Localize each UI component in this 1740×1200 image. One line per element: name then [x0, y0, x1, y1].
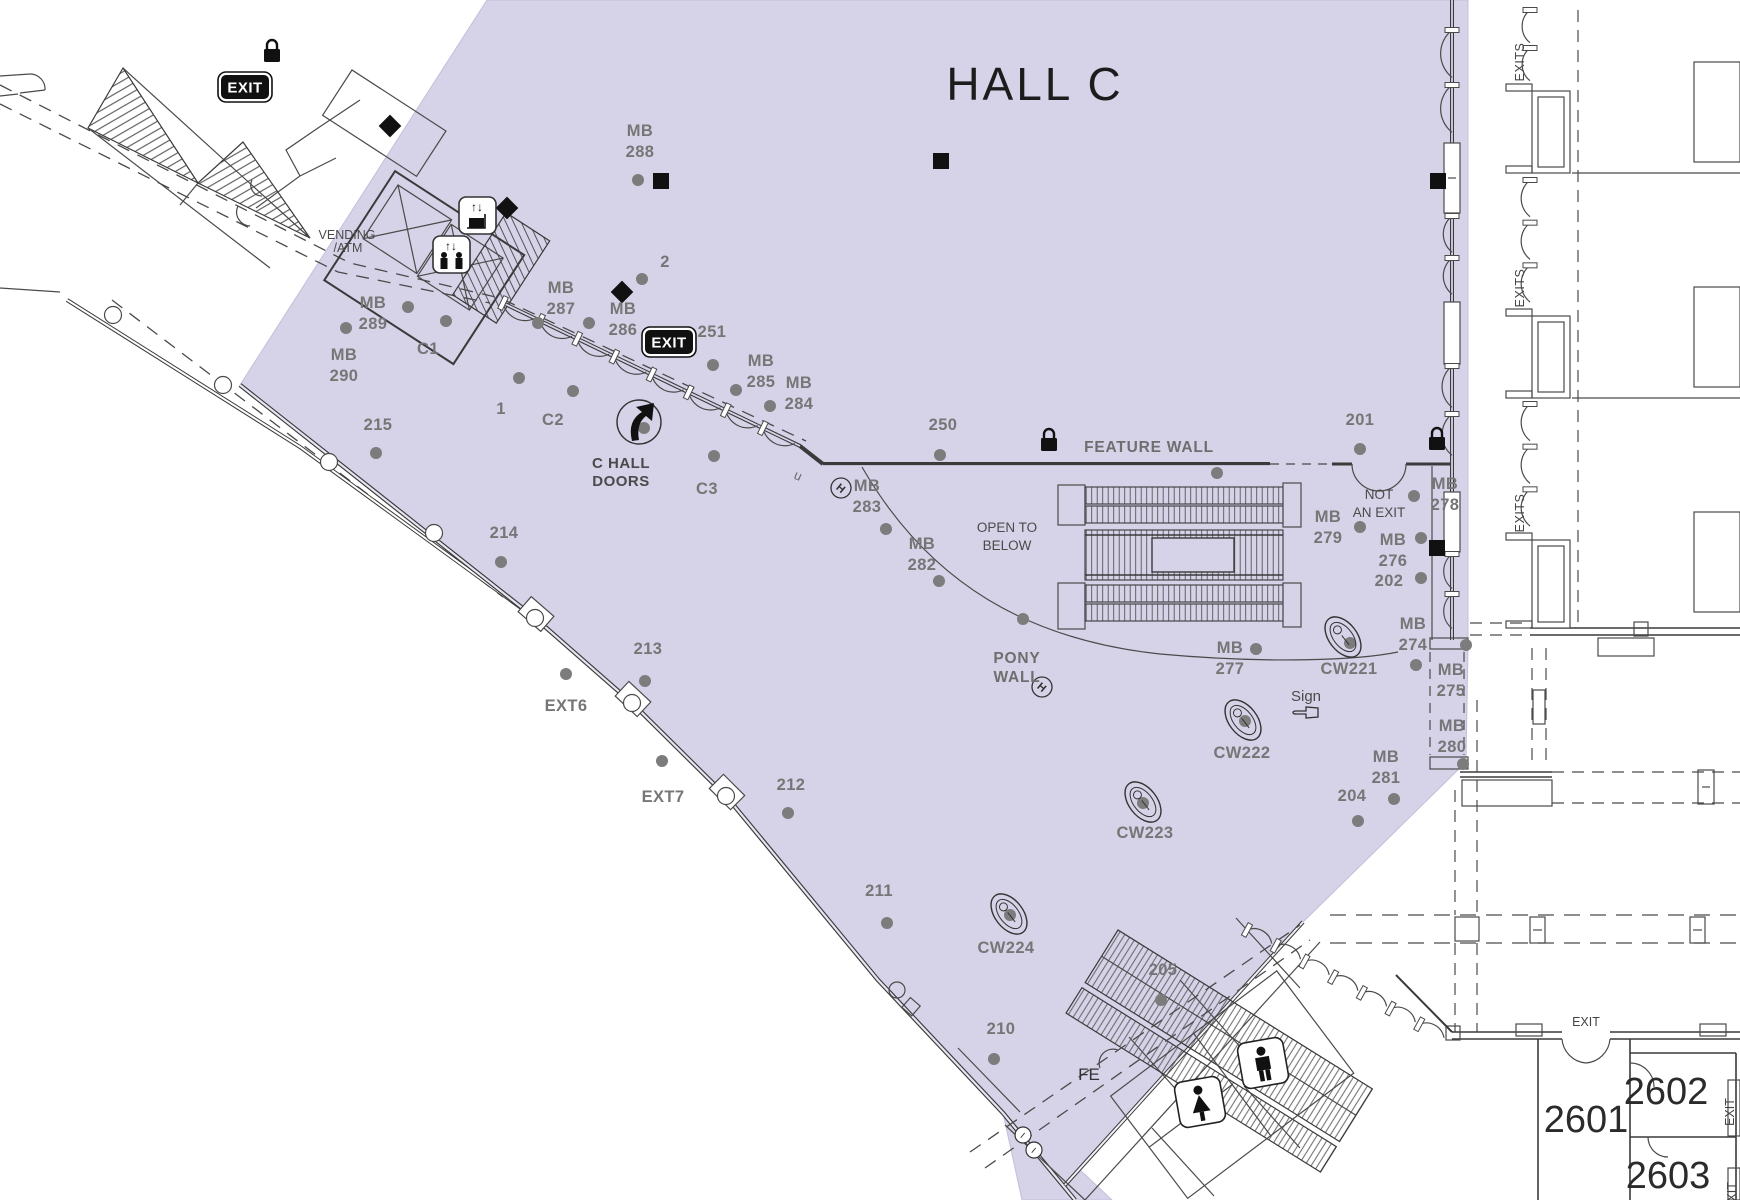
map-marker-text: 213 — [634, 640, 663, 658]
map-marker-label: CW223 — [1116, 824, 1173, 842]
marker-dot — [1388, 793, 1400, 805]
marker-dot — [1250, 643, 1262, 655]
door-jamb — [1385, 1001, 1396, 1016]
map-marker-text: CW221 — [1320, 660, 1377, 678]
east-corridor — [1506, 10, 1740, 656]
c-hall-doors-label: C HALL — [592, 455, 650, 472]
map-marker-text: MB — [627, 122, 653, 140]
pony-wall-label: PONY — [993, 650, 1040, 667]
door-jamb — [1523, 263, 1537, 268]
open-to-below-label: OPEN TO — [977, 520, 1037, 535]
map-marker-text: MB — [1315, 508, 1341, 526]
svg-text:EXIT: EXIT — [651, 335, 686, 352]
door-arc — [1304, 960, 1329, 975]
room-numbers-layer: 260126022603 — [1544, 1071, 1711, 1197]
door-jamb — [1356, 986, 1367, 1001]
map-marker-label: 2 — [660, 253, 670, 271]
exit-door-label: EXIT — [1725, 1182, 1739, 1200]
feature-wall-label: FEATURE WALL — [1084, 439, 1214, 456]
marker-dot — [1017, 613, 1029, 625]
diamond-icon — [379, 115, 402, 138]
marker-dot — [1415, 532, 1427, 544]
marker-dot — [1211, 467, 1223, 479]
map-marker-label: 213 — [634, 640, 663, 658]
marker-dot — [988, 1053, 1000, 1065]
stairs-northwest — [88, 68, 310, 268]
map-marker-label: C2 — [542, 411, 564, 429]
door-jamb — [1523, 178, 1537, 183]
map-marker-label: CW222 — [1213, 744, 1270, 762]
exits-corridor-label: EXITS — [1513, 269, 1527, 308]
svg-text:WALL: WALL — [993, 669, 1040, 686]
map-marker-text: 205 — [1149, 961, 1178, 979]
marker-dot — [782, 807, 794, 819]
floor-plan-hall-c: HHII MB288MB289MB290MB287MB286MB285MB284… — [0, 0, 1740, 1200]
map-marker-label: C1 — [417, 340, 439, 358]
marker-dot — [636, 273, 648, 285]
map-marker-text: MB — [331, 346, 357, 364]
map-marker-label: 202 — [1375, 572, 1404, 590]
map-marker-text: 279 — [1314, 529, 1343, 547]
marker-dot — [440, 315, 452, 327]
marker-dot — [730, 384, 742, 396]
marker-dot — [639, 675, 651, 687]
column-circle — [718, 788, 735, 805]
marker-dot — [560, 668, 572, 680]
map-marker-text: 278 — [1431, 496, 1460, 514]
map-marker-label: 214 — [490, 524, 519, 542]
exit-sign-badge: EXIT — [642, 327, 696, 357]
marker-dot — [1239, 715, 1251, 727]
map-marker-text: 282 — [908, 556, 937, 574]
room-number-2602: 2602 — [1624, 1071, 1709, 1113]
map-marker-text: MB — [1438, 661, 1464, 679]
column-circle — [321, 454, 338, 471]
map-marker-label: CW224 — [977, 939, 1034, 957]
marker-dot — [340, 322, 352, 334]
marker-dot — [495, 556, 507, 568]
map-marker-label: 1 — [496, 400, 506, 418]
marker-dot — [370, 447, 382, 459]
marker-dot — [402, 301, 414, 313]
door-arc — [1522, 10, 1530, 43]
map-marker-text: CW223 — [1116, 824, 1173, 842]
marker-dot — [1460, 639, 1472, 651]
map-marker-text: MB — [1432, 475, 1458, 493]
map-marker-text: MB — [1380, 531, 1406, 549]
map-marker-text: 281 — [1372, 769, 1401, 787]
freight-elevator-icon: ↑↓ — [459, 197, 496, 234]
door-jamb — [1328, 970, 1339, 985]
svg-text:↑↓: ↑↓ — [471, 200, 483, 214]
lock-icon — [264, 40, 280, 62]
map-marker-text: 277 — [1216, 660, 1245, 678]
marker-dot — [567, 385, 579, 397]
door-jamb — [1523, 402, 1537, 407]
exit-door-label: EXIT — [1572, 1015, 1600, 1029]
marker-dot — [934, 449, 946, 461]
column-square-icon — [653, 173, 669, 189]
map-marker-text: EXT6 — [545, 697, 588, 715]
map-marker-label: EXT7 — [642, 788, 685, 806]
door-jamb — [1414, 1017, 1425, 1032]
map-marker-text: MB — [1439, 717, 1465, 735]
map-marker-text: MB — [548, 279, 574, 297]
map-marker-text: 274 — [1399, 636, 1428, 654]
door-jamb — [1445, 592, 1459, 597]
map-marker-text: MB — [1373, 748, 1399, 766]
marker-dot — [708, 450, 720, 462]
marker-dot — [1155, 994, 1167, 1006]
map-marker-text: 286 — [609, 321, 638, 339]
door-jamb — [1523, 444, 1537, 449]
exit-sign-badge: EXIT — [218, 72, 272, 102]
door-arc — [1419, 1023, 1444, 1038]
map-marker-label: 205 — [1149, 961, 1178, 979]
exits-corridor-label: EXITS — [1513, 43, 1527, 82]
map-marker-text: MB — [854, 477, 880, 495]
door-arc — [1521, 404, 1530, 441]
map-marker-text: 289 — [359, 315, 388, 333]
restroom-men-icon — [1236, 1036, 1289, 1089]
map-marker-text: MB — [909, 535, 935, 553]
restroom-women-icon — [1173, 1075, 1226, 1128]
svg-text:AN EXIT: AN EXIT — [1353, 505, 1406, 520]
door-arc — [1362, 991, 1387, 1006]
marker-dot — [1457, 758, 1469, 770]
map-marker-text: 251 — [698, 323, 727, 341]
map-marker-label: EXT6 — [545, 697, 588, 715]
marker-dot — [632, 174, 644, 186]
door-jamb — [1445, 214, 1459, 219]
map-marker-label: 204 — [1338, 787, 1367, 805]
map-marker-text: MB — [360, 294, 386, 312]
map-marker-label: 212 — [777, 776, 806, 794]
marker-dot — [513, 372, 525, 384]
svg-text:BELOW: BELOW — [983, 538, 1032, 553]
map-marker-label: CW221 — [1320, 660, 1377, 678]
door-arc — [1521, 180, 1530, 217]
exit-door-label: EXIT — [1723, 1098, 1737, 1126]
map-marker-text: MB — [1217, 639, 1243, 657]
svg-text:EXIT: EXIT — [227, 80, 262, 97]
column-circle — [624, 695, 641, 712]
map-marker-text: 285 — [747, 373, 776, 391]
door-arc — [1521, 447, 1530, 484]
map-marker-label: 250 — [929, 416, 958, 434]
door-jamb — [1445, 256, 1459, 261]
column-square-icon — [1429, 540, 1445, 556]
svg-text:↑↓: ↑↓ — [445, 239, 457, 253]
marker-dot — [1415, 572, 1427, 584]
fire-hose-icon: H — [831, 478, 851, 498]
map-marker-text: 210 — [987, 1020, 1016, 1038]
door-jamb — [1445, 412, 1459, 417]
column-circle — [215, 377, 232, 394]
room-number-2603: 2603 — [1626, 1155, 1711, 1197]
hall-title: HALL C — [946, 58, 1123, 110]
map-marker-label: 251 — [698, 323, 727, 341]
room-number-2601: 2601 — [1544, 1099, 1629, 1141]
marker-dot — [656, 755, 668, 767]
map-marker-text: 276 — [1379, 552, 1408, 570]
door-arc — [1521, 223, 1530, 260]
column-circle — [105, 307, 122, 324]
map-marker-text: 280 — [1438, 738, 1467, 756]
map-marker-text: 204 — [1338, 787, 1367, 805]
column-square-icon — [933, 153, 949, 169]
door-jamb — [1445, 83, 1459, 88]
map-marker-label: 210 — [987, 1020, 1016, 1038]
door-jamb — [1523, 487, 1537, 492]
door-jamb — [1445, 28, 1459, 33]
not-an-exit-label: NOT — [1365, 487, 1394, 502]
map-marker-text: C3 — [696, 480, 718, 498]
fe-label: FE — [1078, 1065, 1100, 1084]
column-circle — [426, 525, 443, 542]
map-marker-text: CW224 — [977, 939, 1034, 957]
marker-dot — [933, 575, 945, 587]
map-marker-text: 212 — [777, 776, 806, 794]
map-marker-text: 287 — [547, 300, 576, 318]
door-jamb — [1523, 8, 1537, 13]
map-marker-label: 201 — [1346, 411, 1375, 429]
map-marker-text: 288 — [626, 143, 655, 161]
column-square-icon — [1430, 173, 1446, 189]
map-marker-text: C1 — [417, 340, 439, 358]
map-marker-label: 215 — [364, 416, 393, 434]
map-marker-text: 214 — [490, 524, 519, 542]
floor-plan-canvas: HHII MB288MB289MB290MB287MB286MB285MB284… — [0, 0, 1740, 1200]
map-marker-text: 250 — [929, 416, 958, 434]
map-marker-text: 283 — [853, 498, 882, 516]
map-marker-text: CW222 — [1213, 744, 1270, 762]
map-marker-text: MB — [786, 374, 812, 392]
marker-dot — [1344, 637, 1356, 649]
map-marker-text: 1 — [496, 400, 506, 418]
map-marker-text: 2 — [660, 253, 670, 271]
door-jamb — [1523, 220, 1537, 225]
svg-text:DOORS: DOORS — [592, 473, 650, 490]
map-marker-text: 201 — [1346, 411, 1375, 429]
map-marker-text: C2 — [542, 411, 564, 429]
map-marker-text: MB — [1400, 615, 1426, 633]
map-marker-text: MB — [748, 352, 774, 370]
marker-dot — [1408, 490, 1420, 502]
marker-dot — [1410, 659, 1422, 671]
map-marker-text: 215 — [364, 416, 393, 434]
map-marker-text: 202 — [1375, 572, 1404, 590]
exits-corridor-label: EXITS — [1513, 494, 1527, 533]
sign-label: Sign — [1291, 688, 1321, 705]
marker-dot — [881, 917, 893, 929]
door-arc — [1391, 1007, 1416, 1022]
door-jamb — [1445, 552, 1459, 557]
door-jamb — [1299, 954, 1310, 969]
map-marker-text: 284 — [785, 395, 814, 413]
hall-c-region — [240, 0, 1468, 1200]
marker-dot — [764, 400, 776, 412]
door-jamb — [1445, 364, 1459, 369]
map-marker-text: EXT7 — [642, 788, 685, 806]
marker-dot — [583, 317, 595, 329]
passenger-elevator-icon: ↑↓ — [433, 236, 470, 273]
map-marker-label: 211 — [865, 882, 893, 900]
wall-fixture-icon: I — [1026, 1142, 1042, 1158]
door-arc — [1333, 976, 1358, 991]
marker-dot — [880, 523, 892, 535]
marker-dot — [1354, 443, 1366, 455]
marker-dot — [532, 317, 544, 329]
map-marker-label: C3 — [696, 480, 718, 498]
map-marker-text: 275 — [1437, 682, 1466, 700]
wall-fixture-icon: I — [1015, 1127, 1031, 1143]
map-marker-text: 211 — [865, 882, 893, 900]
map-marker-text: MB — [610, 300, 636, 318]
svg-text:/ATM: /ATM — [334, 241, 363, 255]
marker-dot — [1354, 521, 1366, 533]
marker-dot — [1352, 815, 1364, 827]
map-marker-text: 290 — [330, 367, 359, 385]
column-circle — [527, 610, 544, 627]
vending-atm-label: VENDING — [319, 228, 376, 242]
marker-dot — [707, 359, 719, 371]
